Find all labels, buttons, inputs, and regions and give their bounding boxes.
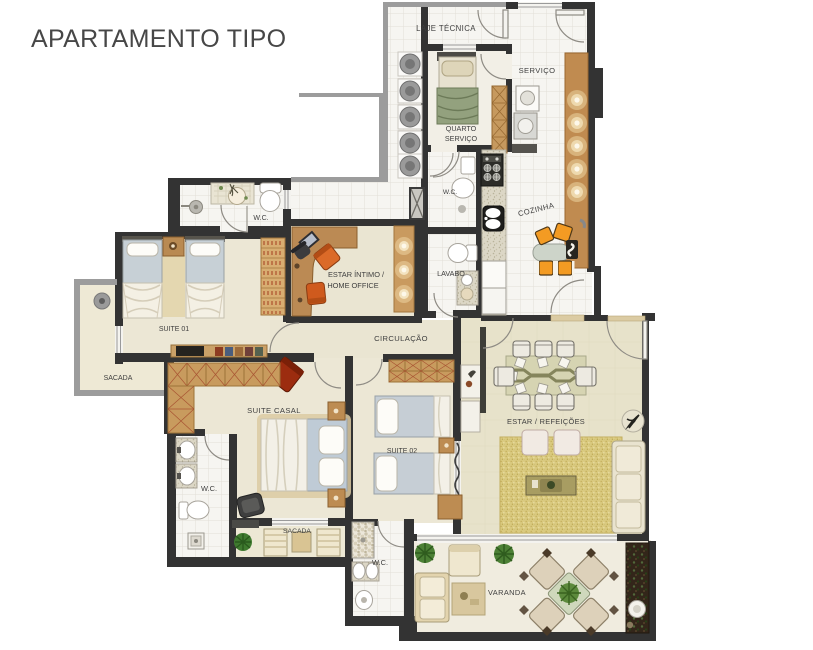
svg-text:APARTAMENTO TIPO: APARTAMENTO TIPO <box>31 25 286 53</box>
svg-text:LAVABO: LAVABO <box>437 269 465 278</box>
svg-text:SUITE 02: SUITE 02 <box>387 448 417 455</box>
svg-text:W.C.: W.C. <box>201 484 217 493</box>
svg-text:SERVIÇO: SERVIÇO <box>519 66 556 75</box>
svg-text:SUITE CASAL: SUITE CASAL <box>247 406 301 415</box>
svg-text:ESTAR / REFEIÇÕES: ESTAR / REFEIÇÕES <box>507 417 585 426</box>
svg-text:W.C.: W.C. <box>372 558 388 567</box>
svg-text:HOME OFFICE: HOME OFFICE <box>327 281 378 290</box>
svg-text:CIRCULAÇÃO: CIRCULAÇÃO <box>374 334 428 343</box>
svg-text:VARANDA: VARANDA <box>488 588 526 597</box>
svg-text:SACADA: SACADA <box>104 375 133 382</box>
svg-text:SUITE 01: SUITE 01 <box>159 326 189 333</box>
svg-text:SERVIÇO: SERVIÇO <box>445 134 478 143</box>
svg-text:LAJE TÉCNICA: LAJE TÉCNICA <box>416 24 476 33</box>
svg-text:SACADA: SACADA <box>283 528 311 535</box>
svg-text:W.C.: W.C. <box>253 215 268 222</box>
svg-text:W.C.: W.C. <box>443 189 457 196</box>
svg-text:QUARTO: QUARTO <box>446 124 477 133</box>
svg-text:ESTAR ÍNTIMO /: ESTAR ÍNTIMO / <box>328 270 385 279</box>
